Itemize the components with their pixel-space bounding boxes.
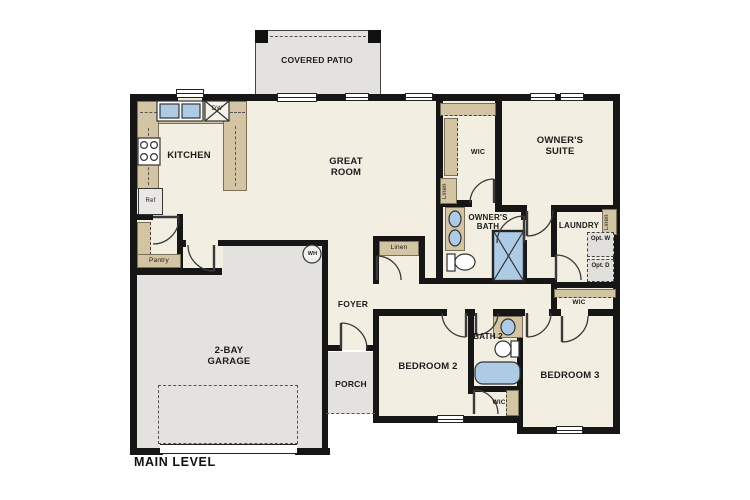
patio-sliding-door (277, 93, 317, 102)
floor-plan: Opt. W Opt. D (0, 0, 750, 500)
garage-door (160, 444, 297, 454)
fixture-label-ref: Ref (140, 198, 161, 205)
bedroom3-window (556, 426, 583, 434)
owners-wic-shelf-left (444, 118, 458, 176)
room-label-porch: PORCH (329, 379, 373, 389)
room-label-bedroom3: BEDROOM 3 (530, 370, 610, 381)
room-label-owners-bath: OWNER'S BATH (457, 213, 519, 232)
fixture-label-linen-laundry: Linen (604, 210, 616, 234)
porch-edge-dashed (326, 413, 375, 414)
fixture-label-linen-hall: Linen (380, 244, 418, 252)
room-label-bedroom3-wic: WIC (564, 299, 594, 307)
room-label-bedroom2-wic: WIC (486, 399, 512, 407)
fixture-label-wh: WH (304, 251, 321, 257)
room-label-kitchen: KITCHEN (157, 150, 221, 161)
room-label-bath2: BATH 2 (471, 332, 505, 341)
garage-door-clearance-dashed (158, 385, 298, 444)
room-label-laundry: LAUNDRY (555, 221, 603, 230)
owners-wic-shelf-top (440, 103, 496, 116)
fixture-label-pantry: Pantry (138, 257, 180, 265)
kitchen-window (176, 89, 204, 98)
optional-dryer-label: Opt. D (592, 263, 610, 269)
optional-dryer-box: Opt. D (587, 259, 614, 282)
fixture-label-dw: DW (206, 106, 228, 113)
optional-washer-label: Opt. W (591, 236, 610, 242)
room-label-owners-suite: OWNER'S SUITE (522, 135, 598, 157)
bedroom2-window (437, 415, 464, 423)
room-label-covered-patio: COVERED PATIO (277, 55, 357, 65)
owners-suite-window-1 (530, 93, 556, 101)
patio-edge-dashed (270, 36, 366, 37)
bedroom3-wic-shelf (554, 289, 616, 298)
room-label-owners-wic: WIC (460, 149, 496, 157)
owners-suite-window-2 (560, 93, 584, 101)
room-label-bedroom2: BEDROOM 2 (388, 361, 468, 372)
plan-title: MAIN LEVEL (134, 455, 216, 470)
room-label-great-room: GREAT ROOM (316, 156, 376, 178)
optional-washer-box: Opt. W (587, 232, 614, 257)
room-label-garage: 2-BAY GARAGE (198, 345, 260, 367)
patio-post-right (368, 30, 381, 43)
room-label-foyer: FOYER (331, 299, 375, 309)
foyer-floor (326, 240, 377, 350)
fixture-label-linen-owners: Linen (442, 179, 455, 203)
great-room-window-1 (345, 93, 369, 101)
patio-post-left (255, 30, 268, 43)
great-room-window-2 (405, 93, 433, 101)
